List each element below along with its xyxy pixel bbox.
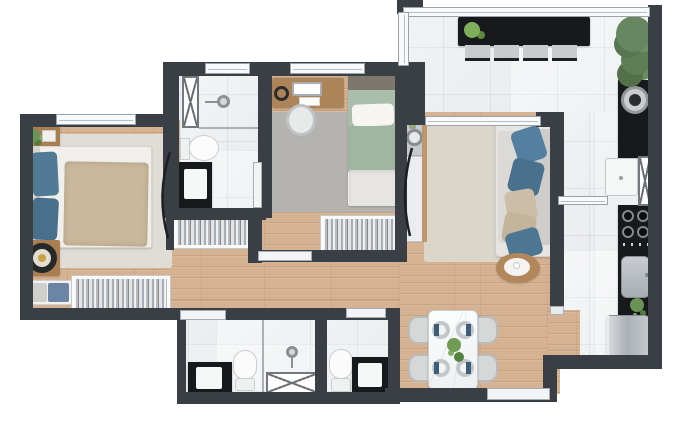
bed2-blanket [349, 170, 398, 206]
round-grill-center [629, 94, 641, 106]
wall-bedroom2-right [395, 76, 407, 262]
shower2-stem [291, 358, 293, 368]
bed1-pillow-blue-2 [31, 197, 59, 240]
toilet3-bowl [329, 349, 353, 379]
toilet2-bowl [233, 350, 257, 380]
floor-plan [0, 0, 674, 441]
bathroom3-sink [358, 363, 382, 387]
wall-end-cap [550, 306, 564, 315]
bar-stool-2 [494, 45, 519, 61]
bar-stool-3 [523, 45, 548, 61]
bed1-pillow-blue-1 [31, 151, 59, 196]
bathroom2-sink [196, 367, 222, 389]
wash-counter-wood-edge [422, 124, 427, 242]
wall-closet-stub [166, 218, 174, 250]
wall-bathrooms-left [177, 308, 186, 404]
wall-top [163, 62, 405, 76]
wall-bathrooms-bottom [177, 392, 400, 404]
kitchen-terrace-door [558, 196, 608, 205]
bedroom1-window [56, 114, 136, 125]
shower2-head-icon [286, 346, 298, 358]
balcony-glass-rail-left [398, 12, 409, 66]
living-rug [424, 124, 500, 262]
bathroom3-sliding-door [346, 308, 386, 318]
napkin-2 [434, 362, 439, 374]
bar-counter-plant-icon [464, 22, 480, 38]
laptop [292, 82, 322, 96]
bed2-headboard [348, 76, 398, 90]
toilet2-tank [235, 378, 255, 391]
bathroom1-door-leaf [253, 162, 262, 208]
bathroom2-glass [262, 320, 264, 392]
corner-plant-icon [616, 16, 652, 52]
dining-plant-icon [447, 338, 461, 352]
wash-counter-sink-icon [406, 129, 423, 146]
balcony-glass-rail-top [403, 7, 650, 17]
nightstand-books [42, 130, 56, 142]
bathroom1-sink [184, 169, 207, 199]
wall-bathrooms-divider [315, 320, 327, 392]
napkin-4 [466, 362, 471, 374]
balcony-sliding-door [425, 116, 541, 126]
table-lamp-center [38, 254, 46, 262]
bedroom2-wardrobe [321, 216, 403, 254]
wall-bedroom1-bottom [20, 308, 180, 320]
napkin-1 [434, 324, 439, 336]
wall-kitchen-bottom [548, 355, 658, 369]
place-setting-3 [456, 321, 474, 339]
wall-bathroom1-left [163, 62, 179, 218]
cooktop-burner-1 [622, 210, 634, 222]
bench-cushion-blue [48, 283, 69, 302]
bar-stool-1 [465, 45, 490, 61]
wall-right [648, 5, 662, 369]
place-setting-4 [456, 359, 474, 377]
toilet1-bowl [189, 135, 219, 161]
bed2-green-mid [348, 126, 398, 172]
entry-door [487, 388, 550, 400]
side-table-cup [513, 262, 520, 269]
bedroom1-wardrobe [72, 276, 170, 312]
bathroom1-shower-glass [199, 127, 265, 129]
bed1-throw-blanket [63, 161, 148, 246]
cooktop-burner-3 [622, 226, 634, 238]
wash-counter-cabinet [404, 156, 424, 242]
bathroom1-cabinet-hatched [182, 76, 199, 128]
cooktop-knobs [623, 243, 649, 246]
bedroom2-window [290, 63, 365, 74]
bed2-pillow [352, 103, 395, 126]
kitchen-sink [621, 256, 650, 298]
bedroom2-sliding-door [258, 251, 312, 261]
wall-bedroom1-left [20, 114, 33, 320]
shower1-head-icon [217, 95, 230, 108]
bathroom2-sliding-door [180, 310, 226, 320]
headphones-icon [274, 86, 289, 101]
shower2-box-hatched [266, 372, 318, 394]
office-chair [286, 104, 316, 136]
kitchen-plant-icon [630, 298, 644, 312]
napkin-3 [466, 324, 471, 336]
toilet3-tank [331, 378, 351, 392]
hallway-closet [174, 216, 258, 248]
wall-living-kitchen-divider [550, 112, 564, 314]
kitchen-passage-floor [548, 310, 580, 360]
washer-dot [619, 176, 623, 180]
bathroom1-window [205, 63, 250, 74]
bar-stool-4 [552, 45, 577, 61]
